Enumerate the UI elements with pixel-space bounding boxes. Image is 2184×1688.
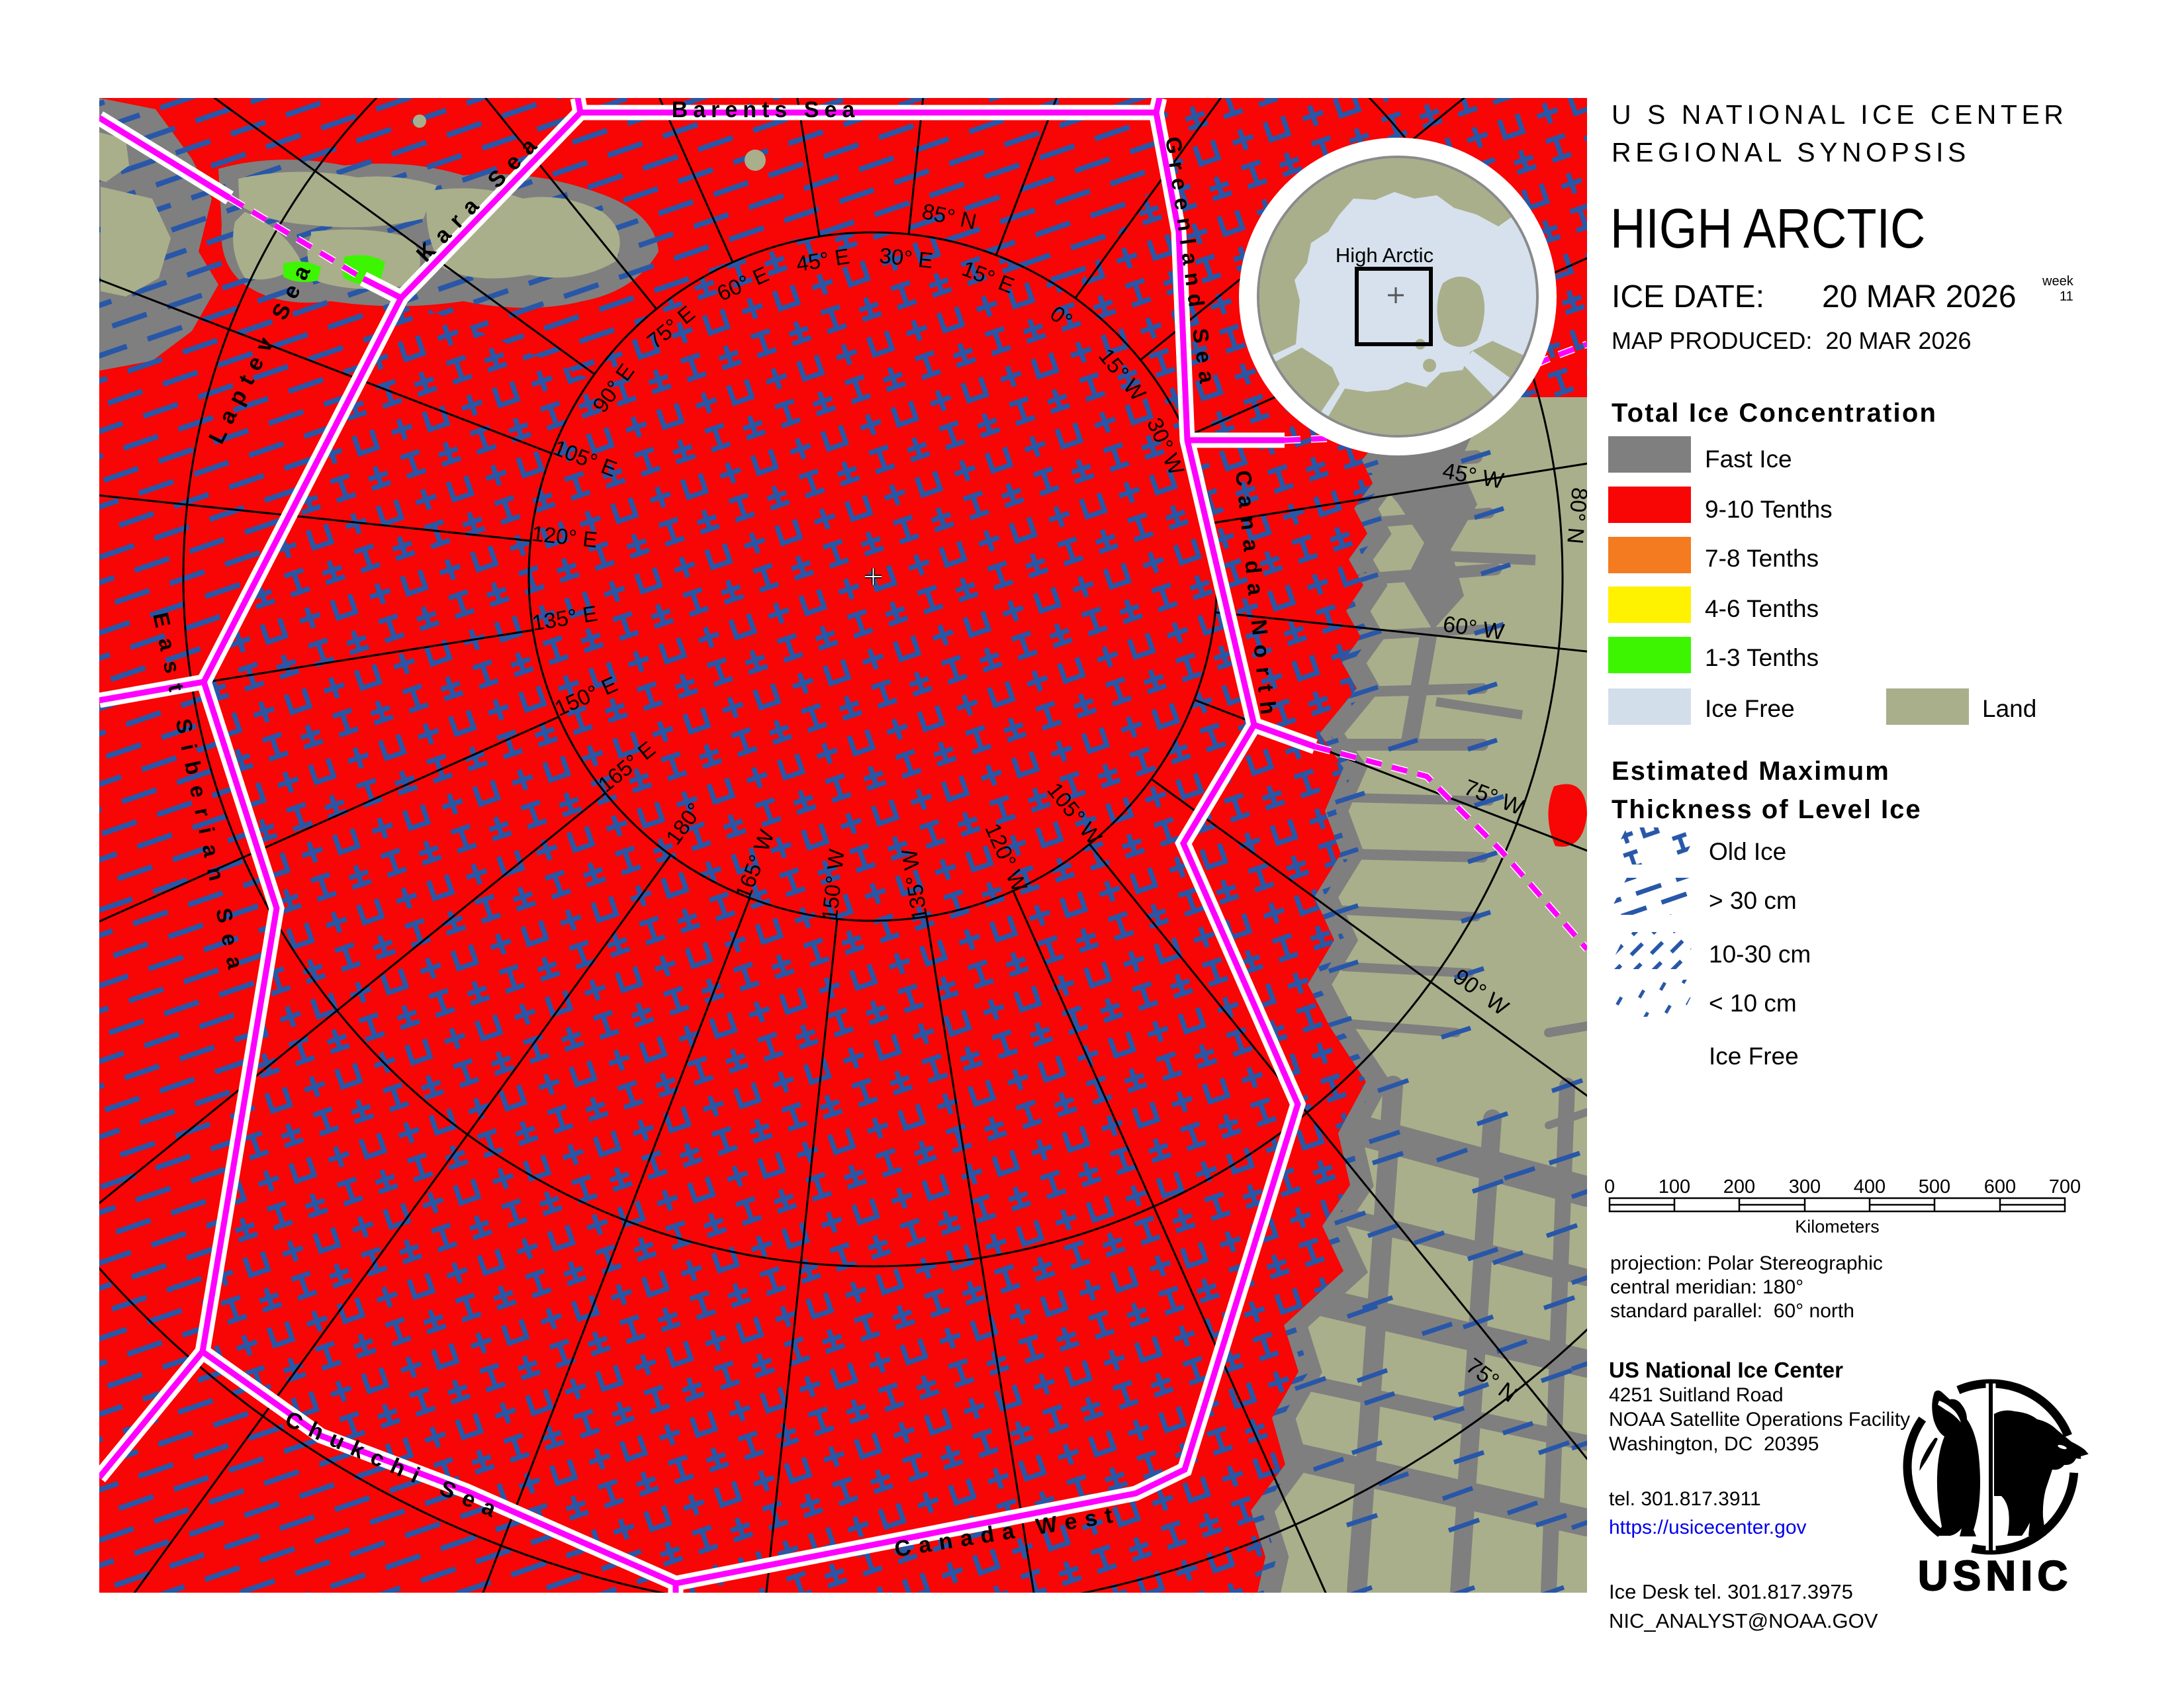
svg-text:500: 500: [1919, 1176, 1950, 1197]
svg-text:200: 200: [1723, 1176, 1755, 1197]
svg-text:700: 700: [2049, 1176, 2081, 1197]
svg-text:0: 0: [1605, 1176, 1615, 1197]
svg-text:Barents Sea: Barents Sea: [672, 97, 860, 122]
svg-text:Kilometers: Kilometers: [1795, 1217, 1880, 1237]
svg-text:USNIC: USNIC: [1918, 1553, 2073, 1599]
svg-text:80° N: 80° N: [1562, 487, 1592, 545]
svg-text:100: 100: [1659, 1176, 1690, 1197]
svg-text:600: 600: [1984, 1176, 2016, 1197]
svg-text:High Arctic: High Arctic: [1336, 244, 1433, 267]
svg-text:300: 300: [1789, 1176, 1821, 1197]
svg-text:400: 400: [1854, 1176, 1886, 1197]
